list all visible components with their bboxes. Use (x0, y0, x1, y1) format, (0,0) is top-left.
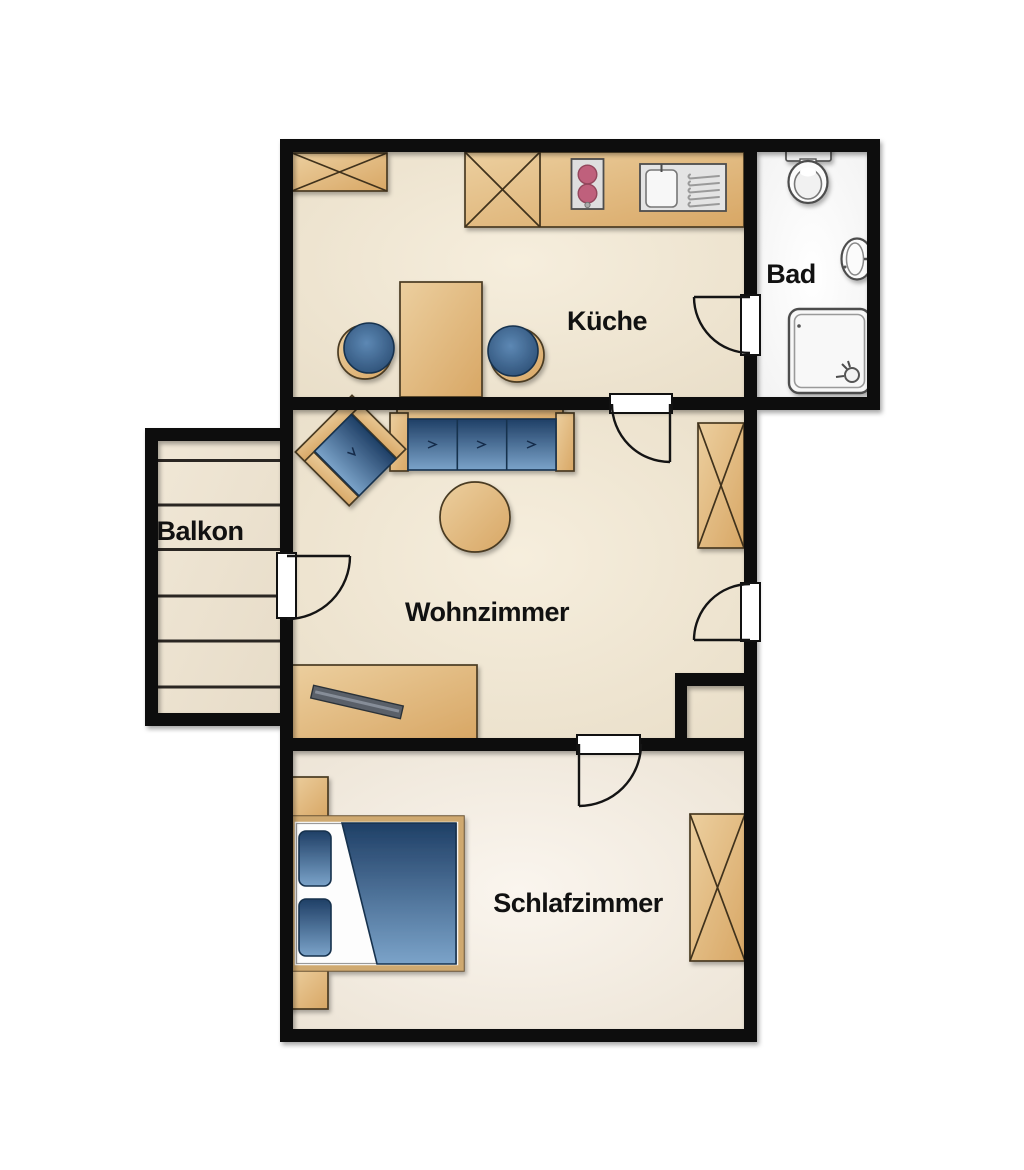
entrance-door-opening (741, 583, 760, 641)
balcony-door-opening (277, 553, 296, 618)
wall-alcove-left (675, 673, 687, 751)
wall-balcony-left (145, 428, 158, 726)
burner (578, 184, 597, 203)
label-kueche: Küche (567, 306, 648, 336)
label-balkon: Balkon (156, 516, 243, 546)
sofa (390, 406, 574, 471)
double-bed (289, 816, 464, 971)
nightstand (289, 777, 328, 817)
bathroom-door-opening (741, 295, 760, 355)
wall-kitchen-living (280, 397, 757, 410)
label-wohnzimmer: Wohnzimmer (405, 597, 570, 627)
wall-balcony-top (145, 428, 293, 441)
floor-plan-canvas: Küche Bad Balkon Wohnzimmer Schlafzimmer (0, 0, 1024, 1170)
floor-plan: Küche Bad Balkon Wohnzimmer Schlafzimmer (0, 0, 1024, 1170)
wall-cabinet (292, 153, 387, 191)
dining-table (400, 282, 482, 397)
label-bad: Bad (766, 259, 816, 289)
pillow (299, 899, 331, 956)
wall-top (280, 139, 880, 152)
wall-bottom (280, 1029, 757, 1042)
kitchen-door-opening (610, 394, 672, 413)
burner (578, 165, 597, 184)
wall-bath-right (867, 139, 880, 410)
shower (789, 309, 870, 393)
wall-bath-bottom (744, 397, 880, 410)
wall-alcove-top (675, 673, 757, 686)
stove (572, 159, 604, 209)
bedroom-door-opening (577, 735, 640, 754)
stove-knob (585, 202, 590, 207)
sideboard (289, 665, 477, 739)
wardrobe (690, 814, 745, 961)
wardrobe (698, 423, 744, 548)
pillow (299, 831, 331, 886)
toilet (786, 147, 831, 203)
chair (338, 323, 394, 379)
balcony-floor (158, 441, 280, 713)
kitchen-sink (640, 164, 726, 211)
nightstand (289, 970, 328, 1009)
label-schlafzimmer: Schlafzimmer (493, 888, 664, 918)
wall-balcony-bottom (145, 713, 293, 726)
coffee-table (440, 482, 510, 552)
chair (488, 326, 544, 382)
